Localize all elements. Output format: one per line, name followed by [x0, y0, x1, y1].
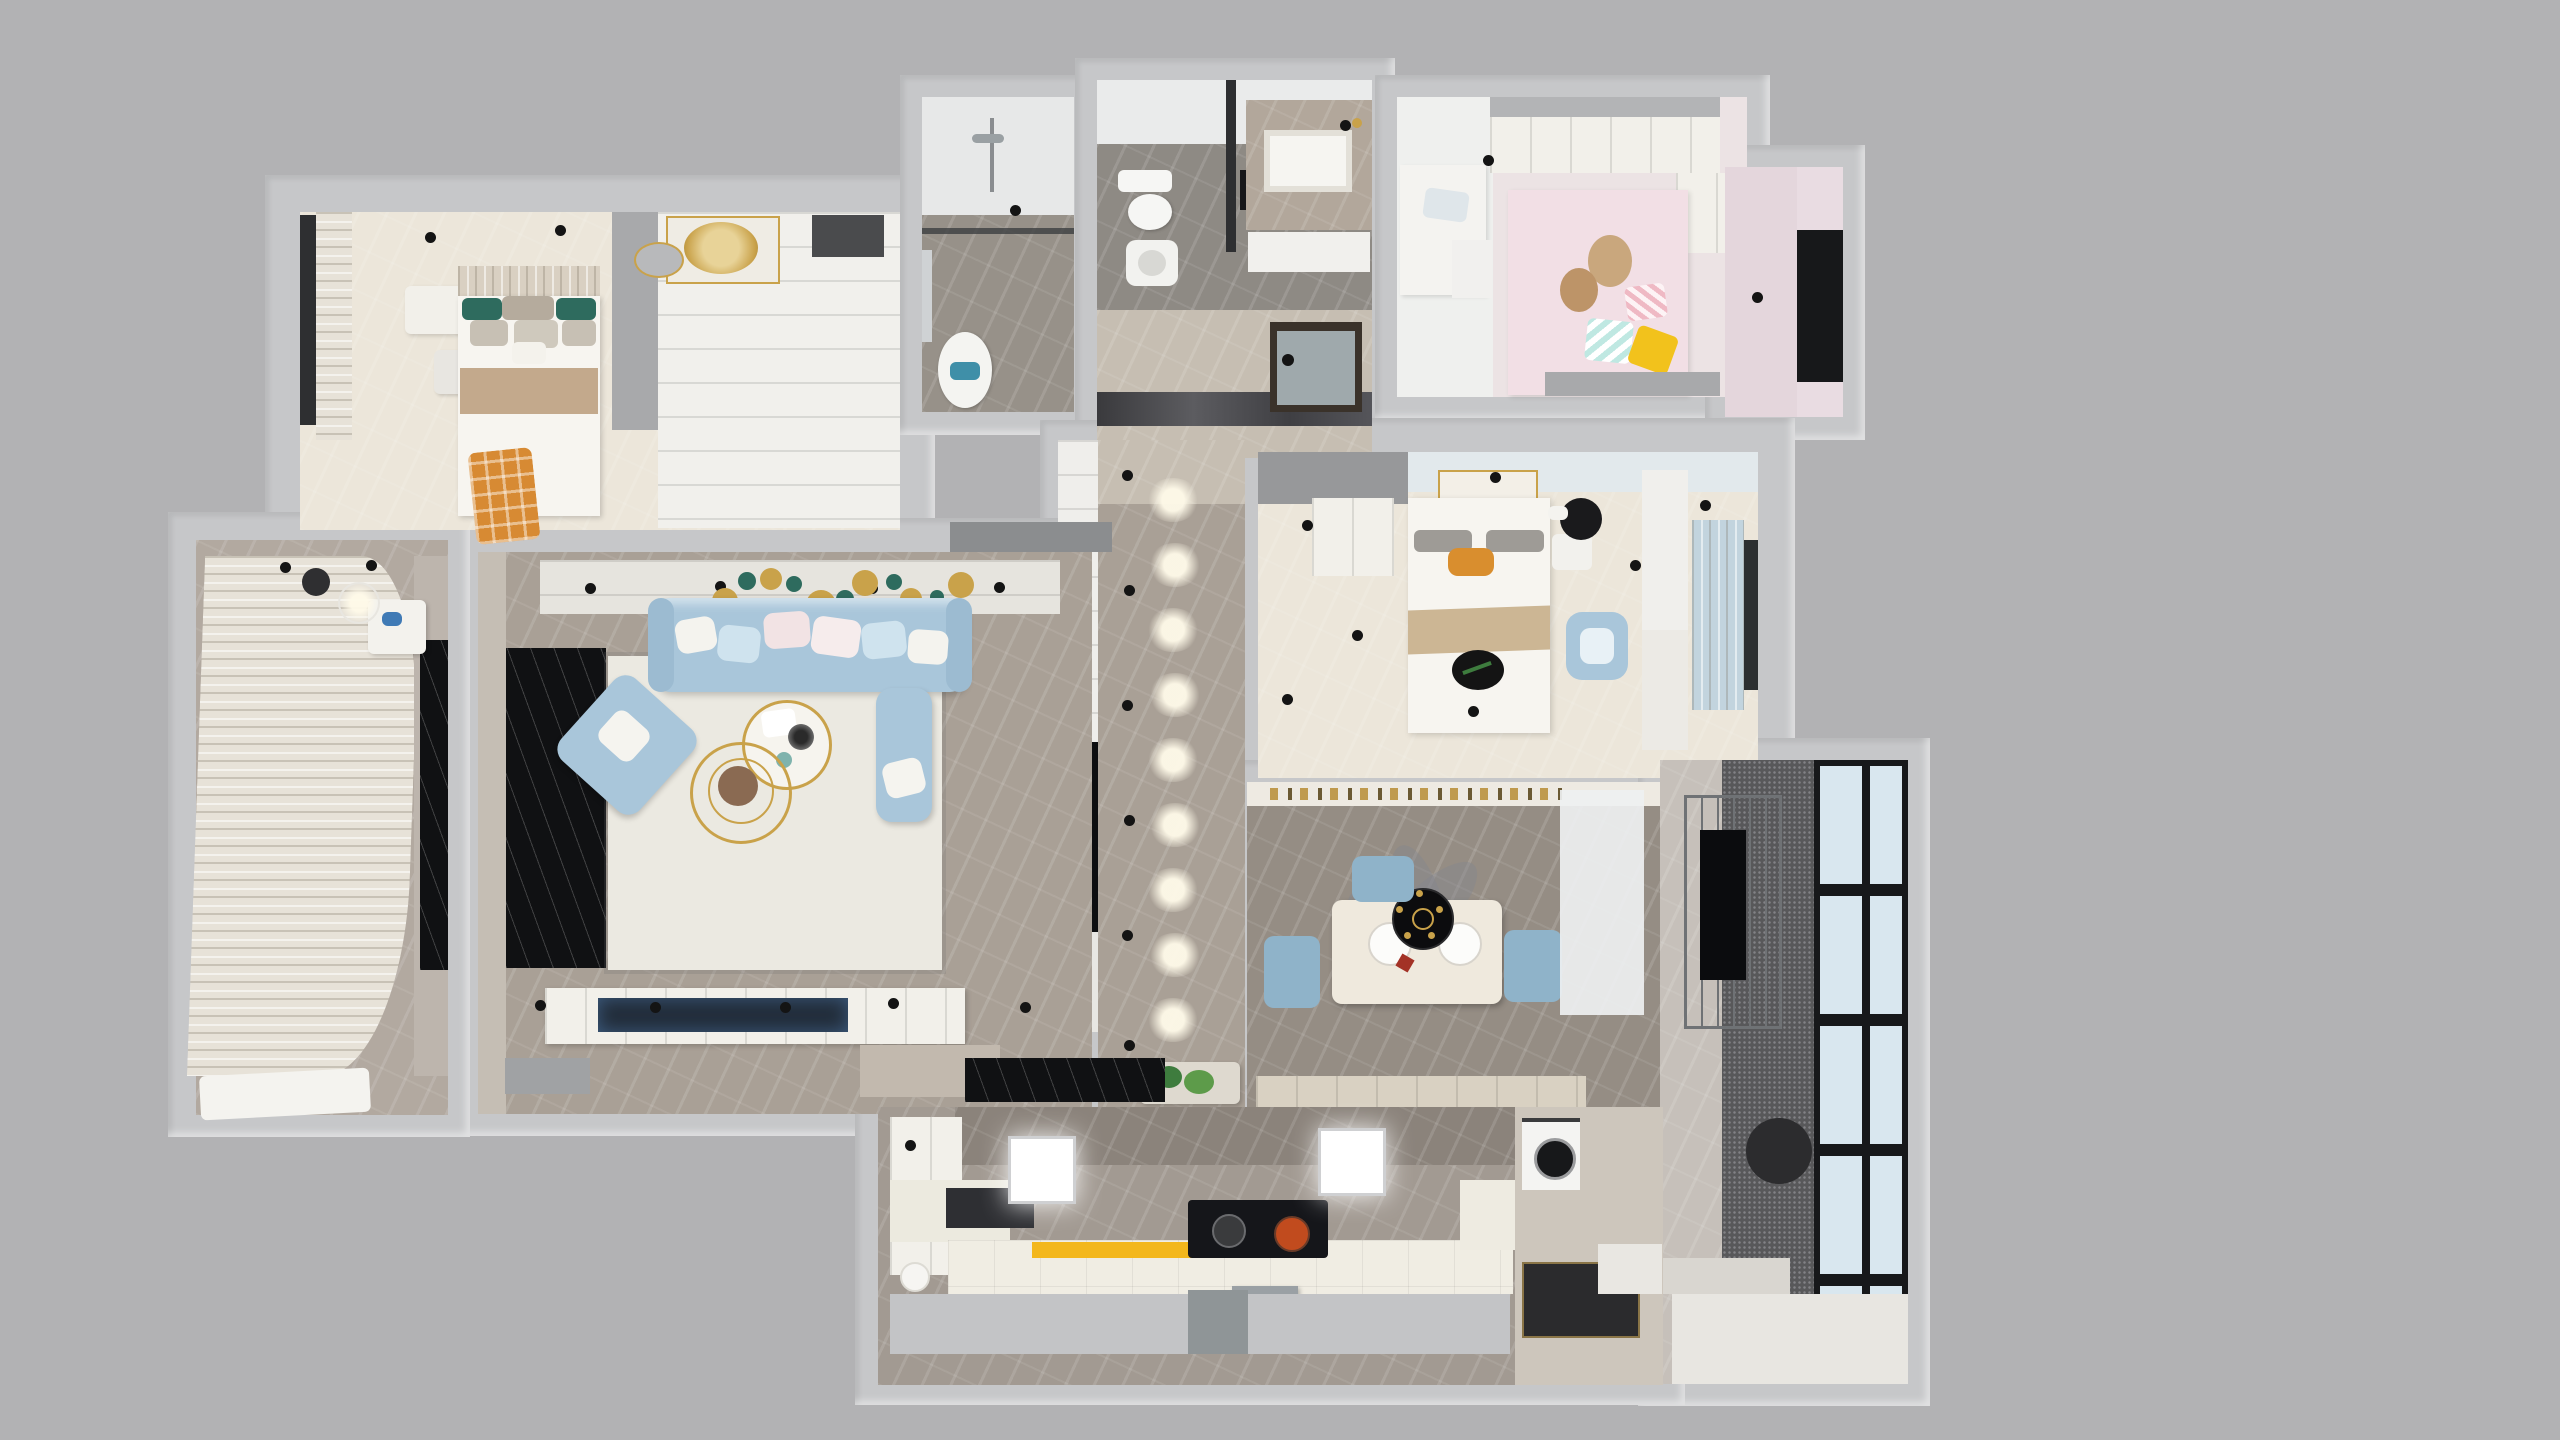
teal-towel	[950, 362, 980, 380]
corridor-downlight-4	[1124, 815, 1135, 826]
corridor-glow-4	[1148, 673, 1202, 717]
balcony-round-rug	[1746, 1118, 1812, 1184]
pillow-knit-1	[470, 320, 508, 346]
toilet-downlight	[1340, 120, 1351, 131]
sofa-pillow-2	[716, 624, 762, 664]
tv-strip-downlight-5	[1020, 1002, 1031, 1013]
light-panel-1	[1008, 1136, 1076, 1204]
coffee-table-spiky-decor	[788, 724, 814, 750]
master-gray-cabinet	[1258, 452, 1408, 504]
living-black-marble-left	[506, 648, 606, 968]
bedroom-window	[300, 215, 316, 425]
master-downlight-4	[1282, 694, 1293, 705]
sofa-pillow-4	[810, 615, 863, 659]
squat-pan-inner	[1138, 250, 1166, 276]
master-downlight-7	[1700, 500, 1711, 511]
balcony-white-step	[1660, 1258, 1790, 1294]
master-black-tray	[1452, 650, 1504, 690]
corridor-glow-2	[1148, 543, 1202, 587]
master-pillow-orange	[1448, 548, 1494, 576]
corridor-downlight-3	[1122, 700, 1133, 711]
master-window-edge	[1744, 540, 1758, 690]
dining-chair-left	[1264, 936, 1320, 1008]
decor-gold-squiggle	[1270, 788, 1570, 800]
kids-wardrobe-fronts	[1490, 117, 1720, 173]
kitchen-gray-box	[1188, 1290, 1248, 1354]
corridor-glow-6	[1148, 803, 1202, 847]
ceiling-downlight-1	[585, 583, 596, 594]
corridor-glow-1	[1146, 478, 1200, 522]
kids-curtain	[1725, 167, 1797, 417]
planter-plant-2	[1184, 1070, 1214, 1094]
decor-disc-gold-6	[948, 572, 974, 598]
corridor-downlight-1	[1122, 470, 1133, 481]
orange-plaid-throw	[467, 447, 540, 545]
master-wardrobe	[1312, 498, 1394, 576]
kitchen-downlight	[905, 1140, 916, 1151]
pillow-pink-striped	[1624, 282, 1668, 321]
washer-door	[1534, 1138, 1576, 1180]
living-chaise	[876, 688, 932, 822]
kids-downlight-1	[1483, 155, 1494, 166]
pendant-lamp-globe	[340, 584, 378, 622]
master-tan-blanket	[1408, 606, 1550, 655]
decor-disc-teal-4	[886, 574, 902, 590]
pillow-gray-center	[502, 296, 554, 320]
corridor-glow-3	[1146, 608, 1200, 652]
hallway-glass-door	[1270, 322, 1362, 412]
sofa-pillow-6	[907, 629, 949, 666]
sofa-pillow-5	[860, 620, 908, 660]
master-downlight-5	[1468, 706, 1479, 717]
living-door-jamb	[950, 522, 1112, 552]
pan-dark	[1212, 1214, 1246, 1248]
vanity-under-cabinet	[1248, 232, 1370, 272]
master-pillow-gray-2	[1486, 530, 1544, 552]
shower-head	[972, 134, 1004, 143]
living-black-marble-bottom	[965, 1058, 1165, 1102]
toilet-bowl	[1128, 194, 1172, 230]
dining-sheer-curtain	[1560, 790, 1644, 1015]
tv-strip-downlight-1	[535, 1000, 546, 1011]
dining-chair-right	[1504, 930, 1562, 1002]
balcony-blue-item	[382, 612, 402, 626]
black-round-table	[1560, 498, 1602, 540]
bath-partition	[1226, 80, 1236, 252]
kids-downlight-2	[1752, 292, 1763, 303]
bedroom-downlight-2	[555, 225, 566, 236]
pillow-knit-3	[562, 320, 596, 346]
shower-pipe	[990, 118, 994, 192]
master-downlight-1	[1490, 472, 1501, 483]
balcony-downlight-2	[366, 560, 377, 571]
master-downlight-3	[1352, 630, 1363, 641]
bed-headboard	[458, 266, 600, 296]
toilet-tank	[1118, 170, 1172, 192]
door-handle	[1282, 354, 1294, 366]
gray-side-box	[505, 1058, 590, 1094]
bath-mirror-strip	[922, 250, 932, 342]
drying-rack-panel	[1700, 830, 1746, 980]
pendant-lamp-disc	[302, 568, 330, 596]
oval-mirror	[634, 242, 684, 278]
vanity-faucet	[1352, 118, 1362, 128]
pillow-small-white	[512, 342, 546, 364]
shower-glass-partition	[922, 228, 1074, 234]
fan-gold-dot-1	[1416, 890, 1423, 897]
yellow-mat	[1032, 1242, 1212, 1258]
round-table-book	[1548, 506, 1568, 520]
ring-table-top	[718, 766, 758, 806]
decor-disc-gold-2	[760, 568, 782, 590]
right-balcony-window	[1814, 760, 1908, 1384]
decor-disc-gold-4	[852, 570, 878, 596]
master-lower-cabinet	[1642, 630, 1688, 750]
sofa-armrest-right	[946, 598, 972, 692]
kids-wardrobe-top	[1490, 97, 1720, 117]
fan-center-ring	[1412, 908, 1434, 930]
corridor-glow-8	[1148, 933, 1202, 977]
corridor-glow-9	[1146, 998, 1200, 1042]
corridor-glow-5	[1146, 738, 1200, 782]
balcony-downlight-1	[280, 562, 291, 573]
gold-chandelier	[684, 222, 758, 274]
corridor-downlight-5	[1122, 930, 1133, 941]
master-shelving-column	[1642, 470, 1688, 630]
sofa-pillow-3	[763, 610, 811, 649]
light-panel-2	[1318, 1128, 1386, 1196]
teddy-bear-small	[1560, 268, 1598, 312]
closet-dark-panel	[812, 215, 884, 257]
fan-gold-dot-4	[1404, 932, 1411, 939]
decor-disc-teal-1	[738, 572, 756, 590]
shower-bath-tile	[922, 97, 1074, 215]
pan-red	[1274, 1216, 1310, 1252]
corridor-glow-7	[1146, 868, 1200, 912]
master-blue-curtain	[1692, 520, 1744, 710]
kids-bench-gray	[1545, 372, 1720, 396]
fan-gold-dot-2	[1436, 906, 1443, 913]
master-downlight-6	[1630, 560, 1641, 571]
balcony-white-floor	[1672, 1294, 1908, 1384]
corridor-downlight-6	[1124, 1040, 1135, 1051]
tv-strip-downlight-3	[780, 1002, 791, 1013]
ceiling-downlight-4	[994, 582, 1005, 593]
living-left-light-edge	[478, 552, 506, 1114]
kids-laptop	[1422, 187, 1470, 223]
pillow-teal-right	[556, 298, 596, 320]
floor-plan-stage	[0, 0, 2560, 1440]
tv-strip-downlight-2	[650, 1002, 661, 1013]
pillow-teal-left	[462, 298, 502, 320]
decor-disc-teal-2	[786, 576, 802, 592]
shower-downlight	[1010, 205, 1021, 216]
entry-white-step	[1598, 1244, 1662, 1294]
armchair-cushion	[1580, 628, 1614, 664]
pillow-teal-diamond	[1584, 318, 1634, 365]
vanity-basin	[1264, 130, 1352, 192]
kids-drawer-unit	[1452, 240, 1492, 298]
tv-strip-downlight-4	[888, 998, 899, 1009]
bedroom-curtain	[316, 212, 352, 440]
bedroom-downlight-1	[425, 232, 436, 243]
corridor-downlight-2	[1124, 585, 1135, 596]
fan-gold-dot-5	[1396, 906, 1403, 913]
sofa-armrest-left	[648, 598, 674, 692]
bed-tan-blanket	[460, 368, 598, 414]
dining-chair-top	[1352, 856, 1414, 902]
paper-towel-roll	[900, 1262, 930, 1292]
fan-gold-dot-3	[1428, 932, 1435, 939]
balcony-black-marble	[420, 640, 448, 970]
balcony-bench	[199, 1068, 371, 1121]
master-downlight-2	[1302, 520, 1313, 531]
kids-dark-window	[1797, 230, 1843, 382]
flat-tv	[598, 998, 848, 1032]
